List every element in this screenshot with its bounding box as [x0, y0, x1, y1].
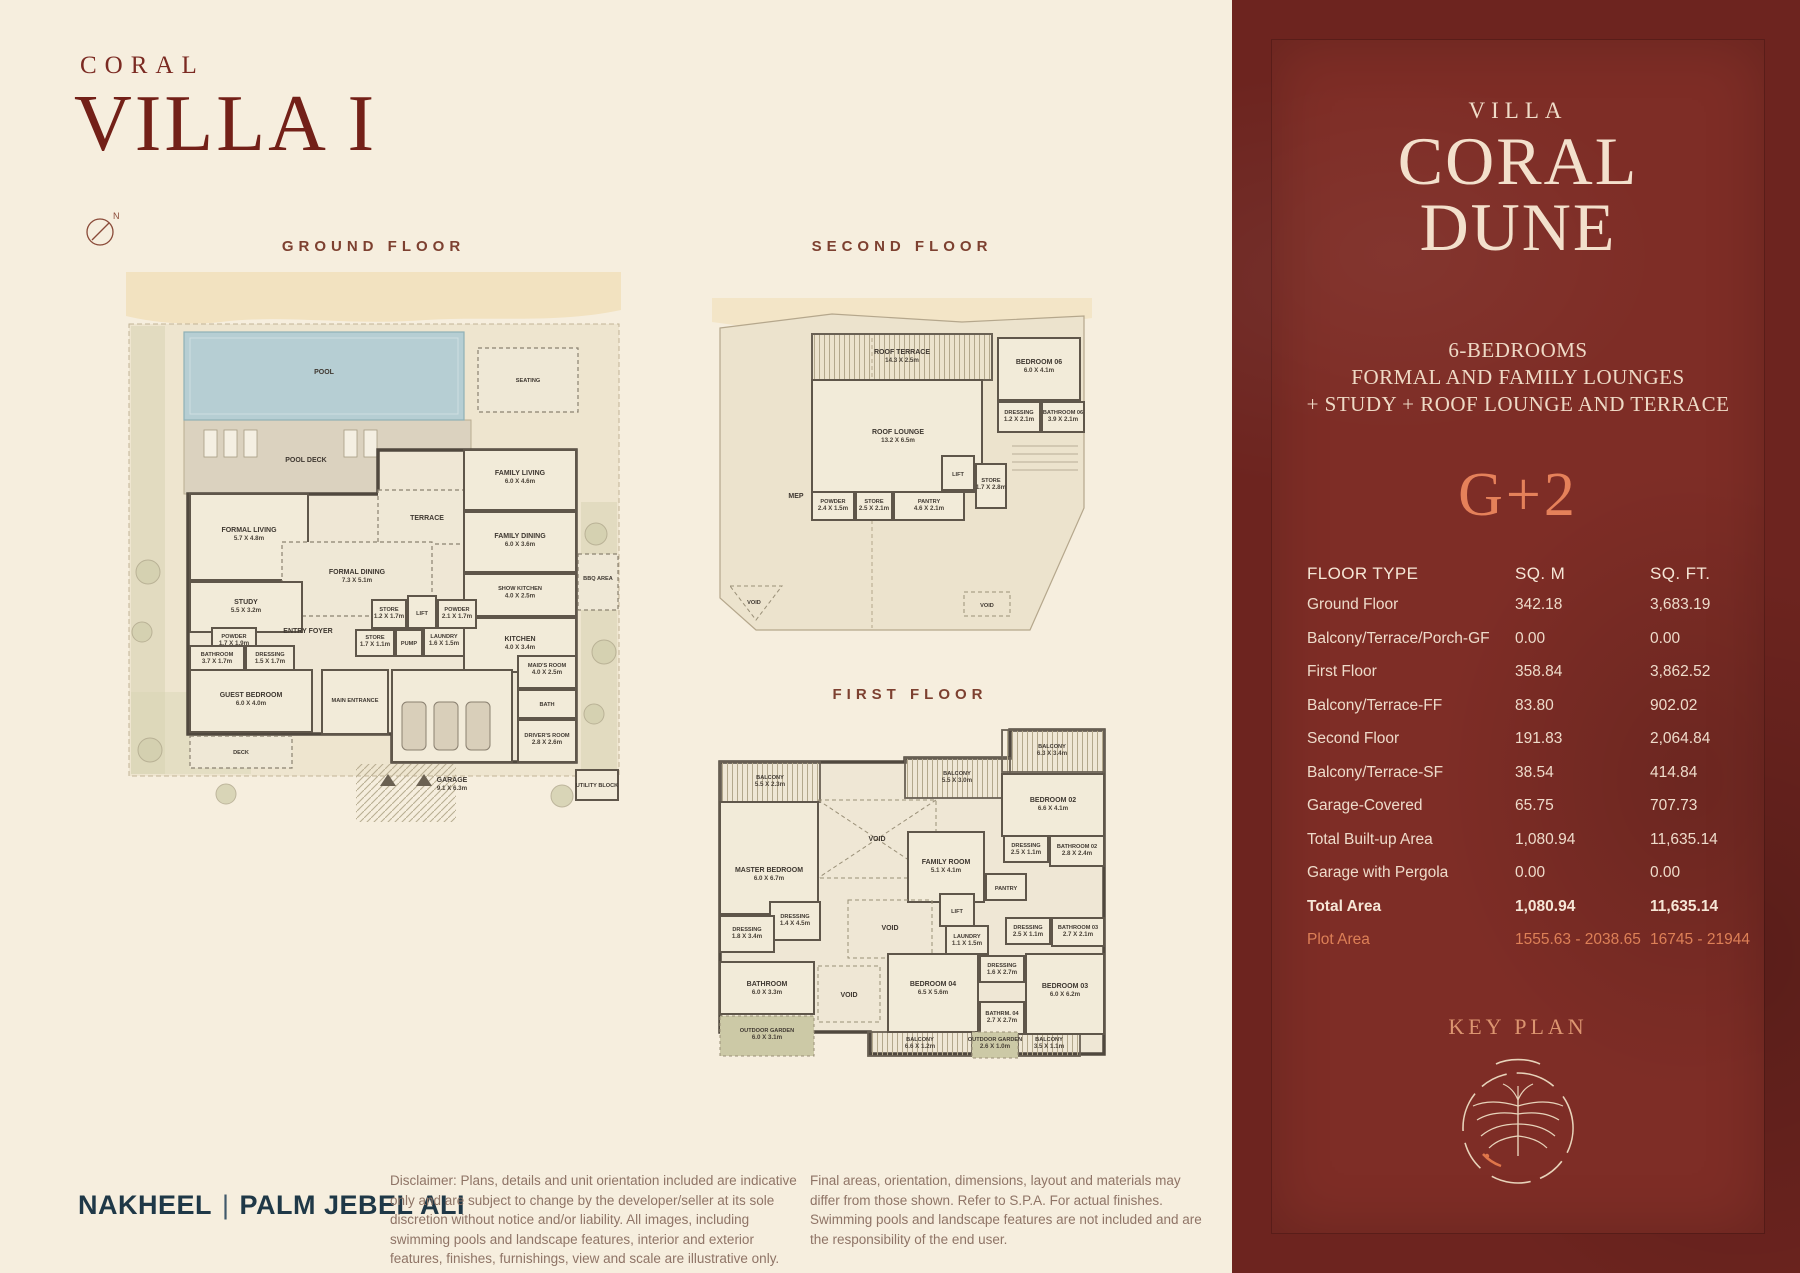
room-label: BATHRM. 042.7 X 2.7m [985, 1011, 1019, 1024]
room-label: VOID [747, 600, 761, 606]
room-label: BBQ AREA [583, 576, 613, 582]
room-label: DRESSING1.8 X 3.4m [732, 927, 763, 940]
room-label: VOID [881, 925, 898, 932]
room-label: MAID'S ROOM4.0 X 2.5m [528, 663, 567, 676]
room-label: BATHROOM6.0 X 3.3m [747, 981, 788, 996]
compass-icon: N [80, 205, 126, 256]
room-label: LIFT [951, 909, 963, 915]
room-label: BATHROOM 032.7 X 2.1m [1058, 925, 1098, 938]
room-label: DECK [233, 750, 249, 756]
col-sqft: SQ. FT. [1650, 564, 1710, 584]
room [720, 802, 818, 914]
room-label: TERRACE [410, 515, 444, 522]
panel-title-line2: DUNE [1272, 194, 1764, 260]
room-label: POWDER2.1 X 1.7m [442, 607, 473, 620]
panel-subtitle: VILLA [1272, 98, 1764, 124]
info-panel: VILLA CORAL DUNE 6-BEDROOMS FORMAL AND F… [1232, 0, 1800, 1273]
room-label: VOID [868, 836, 885, 843]
room-label: DRESSING1.6 X 2.7m [987, 963, 1018, 976]
room-label: VOID [980, 603, 994, 609]
room-label: POWDER2.4 X 1.5m [818, 499, 849, 512]
feature-bedrooms: 6-BEDROOMS [1272, 337, 1764, 364]
room-label: LIFT [952, 472, 964, 478]
info-card: VILLA CORAL DUNE 6-BEDROOMS FORMAL AND F… [1272, 40, 1764, 1233]
config-label: G+2 [1272, 460, 1764, 531]
feature-lounges: FORMAL AND FAMILY LOUNGES [1272, 364, 1764, 391]
col-sqm: SQ. M [1515, 564, 1565, 584]
logo-divider: | [212, 1190, 240, 1220]
feature-list: 6-BEDROOMS FORMAL AND FAMILY LOUNGES + S… [1272, 337, 1764, 418]
room-label: GARAGE9.1 X 6.3m [437, 777, 468, 792]
feature-study: + STUDY + ROOF LOUNGE AND TERRACE [1272, 391, 1764, 418]
room-label: MEP [788, 493, 804, 500]
panel-title-line1: CORAL [1272, 128, 1764, 194]
room-label: BALCONY6.6 X 1.2m [905, 1037, 936, 1050]
driveway [356, 764, 456, 822]
room-label: BALCONY5.5 X 3.0m [942, 771, 973, 784]
room-label: MAIN ENTRANCE [332, 698, 379, 704]
ground-floor-plan: POOL POOL DECK SEATING FAMILY LIVING6.0 … [126, 272, 621, 829]
room-label: DRESSING1.2 X 2.1m [1004, 410, 1035, 423]
disclaimer-right: Final areas, orientation, dimensions, la… [810, 1171, 1210, 1249]
room-label: BATHROOM 022.8 X 2.4m [1057, 844, 1097, 857]
key-plan-palm-icon [1443, 1048, 1593, 1203]
page-title: VILLA I [74, 84, 377, 164]
room-label: BALCONY6.3 X 3.4m [1037, 744, 1068, 757]
compass-north-label: N [113, 211, 120, 221]
room-label: STUDY5.5 X 3.2m [231, 599, 262, 614]
pool [184, 332, 464, 420]
compass-needle [92, 223, 109, 240]
col-floor-type: FLOOR TYPE [1307, 564, 1418, 584]
room-label: PUMP [401, 641, 417, 647]
room-label: BATHROOM 063.9 X 2.1m [1043, 410, 1083, 423]
panel-title: CORAL DUNE [1272, 128, 1764, 260]
first-floor-plan: BALCONY5.5 X 2.3m BALCONY5.5 X 3.0m BALC… [710, 714, 1110, 1074]
key-plan-title: KEY PLAN [1272, 1014, 1764, 1040]
first-floor-title: FIRST FLOOR [710, 686, 1110, 703]
room-label: SEATING [516, 378, 540, 384]
second-floor-plan: ROOF TERRACE14.3 X 2.5m BEDROOM 066.0 X … [712, 298, 1092, 648]
room-label: LIFT [416, 611, 428, 617]
room-label: BALCONY3.5 X 1.1m [1034, 1037, 1065, 1050]
logo-nakheel: NAKHEEL [78, 1190, 212, 1220]
villa-location-dot [1485, 1154, 1489, 1158]
palm-top-island [1496, 1060, 1540, 1064]
room [578, 554, 618, 610]
room-label: DRESSING2.5 X 1.1m [1011, 843, 1042, 856]
room [720, 962, 814, 1014]
ground-floor-title: GROUND FLOOR [126, 238, 621, 255]
brochure-page: CORAL VILLA I N GROUND FLOOR SECOND FLOO… [0, 0, 1800, 1273]
room-label: BALCONY5.5 X 2.3m [755, 775, 786, 788]
room-label: BATH [539, 702, 554, 708]
room-label: UTILITY BLOCK [576, 783, 618, 789]
room-label: POOL [314, 369, 335, 376]
room-label: DRESSING1.4 X 4.5m [780, 914, 811, 927]
disclaimer-left: Disclaimer: Plans, details and unit orie… [390, 1171, 802, 1269]
second-floor-title: SECOND FLOOR [712, 238, 1092, 255]
beach-sand [126, 272, 621, 324]
room-label: PANTRY4.6 X 2.1m [914, 499, 945, 512]
room-label: DRESSING1.5 X 1.7m [255, 652, 286, 665]
room-label: LAUNDRY1.1 X 1.5m [952, 934, 983, 947]
room-label: POWDER1.7 X 1.9m [219, 634, 250, 647]
room-label: POOL DECK [285, 457, 327, 464]
room-label: KITCHEN4.0 X 3.4m [504, 636, 535, 651]
room-label: DRESSING2.5 X 1.1m [1013, 925, 1044, 938]
room-label: VOID [840, 992, 857, 999]
room-label: ENTRY FOYER [283, 628, 332, 635]
room-label: BATHROOM3.7 X 1.7m [201, 652, 234, 665]
garage-cars [402, 702, 490, 750]
brand-label: CORAL [80, 52, 205, 80]
room-label: LAUNDRY1.6 X 1.5m [429, 634, 460, 647]
room-label: PANTRY [995, 886, 1018, 892]
